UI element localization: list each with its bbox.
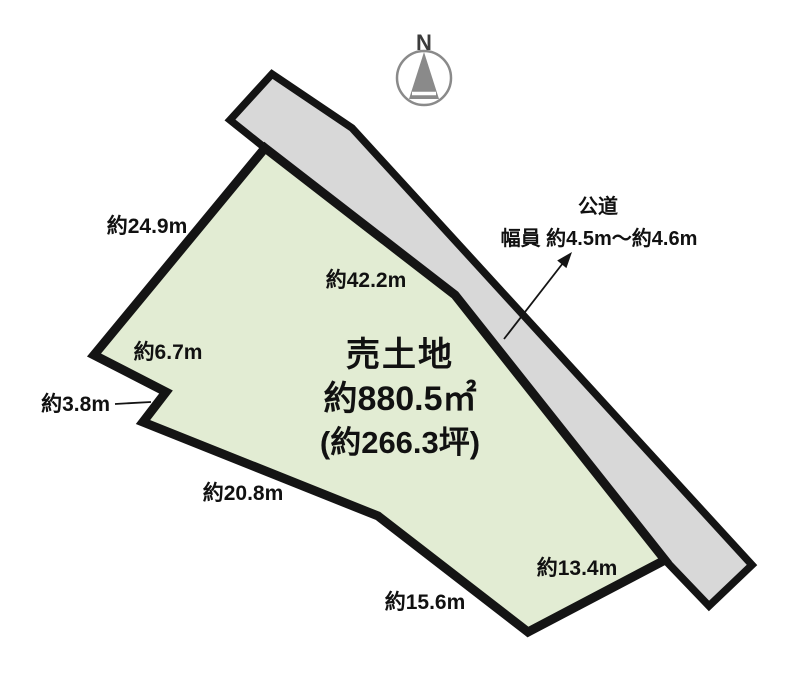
plot-diagram-canvas: N 約24.9m 約42.2m 約6.7m 約3.8m 約20.8m 約15.6…: [0, 0, 800, 686]
parcel-area-tsubo: (約266.3坪): [320, 425, 480, 460]
road-name-label: 公道: [578, 194, 618, 218]
edge-label-west-notch: 約3.8m: [41, 392, 110, 416]
edge-label-south: 約15.6m: [385, 590, 466, 614]
road-width-label: 幅員 約4.5m〜約4.6m: [501, 226, 698, 250]
parcel-area-m2: 約880.5㎡: [323, 379, 476, 418]
north-label: N: [416, 30, 432, 55]
edge-label-north: 約24.9m: [107, 214, 188, 238]
edge-label-west-upper: 約6.7m: [134, 340, 203, 364]
notch-leader-line: [115, 402, 151, 404]
land-plot-diagram: N 約24.9m 約42.2m 約6.7m 約3.8m 約20.8m 約15.6…: [0, 0, 800, 686]
compass: N: [397, 30, 451, 105]
edge-label-road-side: 約42.2m: [326, 268, 407, 292]
edge-label-southeast: 約13.4m: [537, 556, 618, 580]
edge-label-southwest: 約20.8m: [203, 481, 284, 505]
road-info: 公道 幅員 約4.5m〜約4.6m: [501, 194, 698, 250]
road-arrow-head-icon: [557, 252, 572, 268]
parcel-title: 売土地: [346, 336, 454, 374]
